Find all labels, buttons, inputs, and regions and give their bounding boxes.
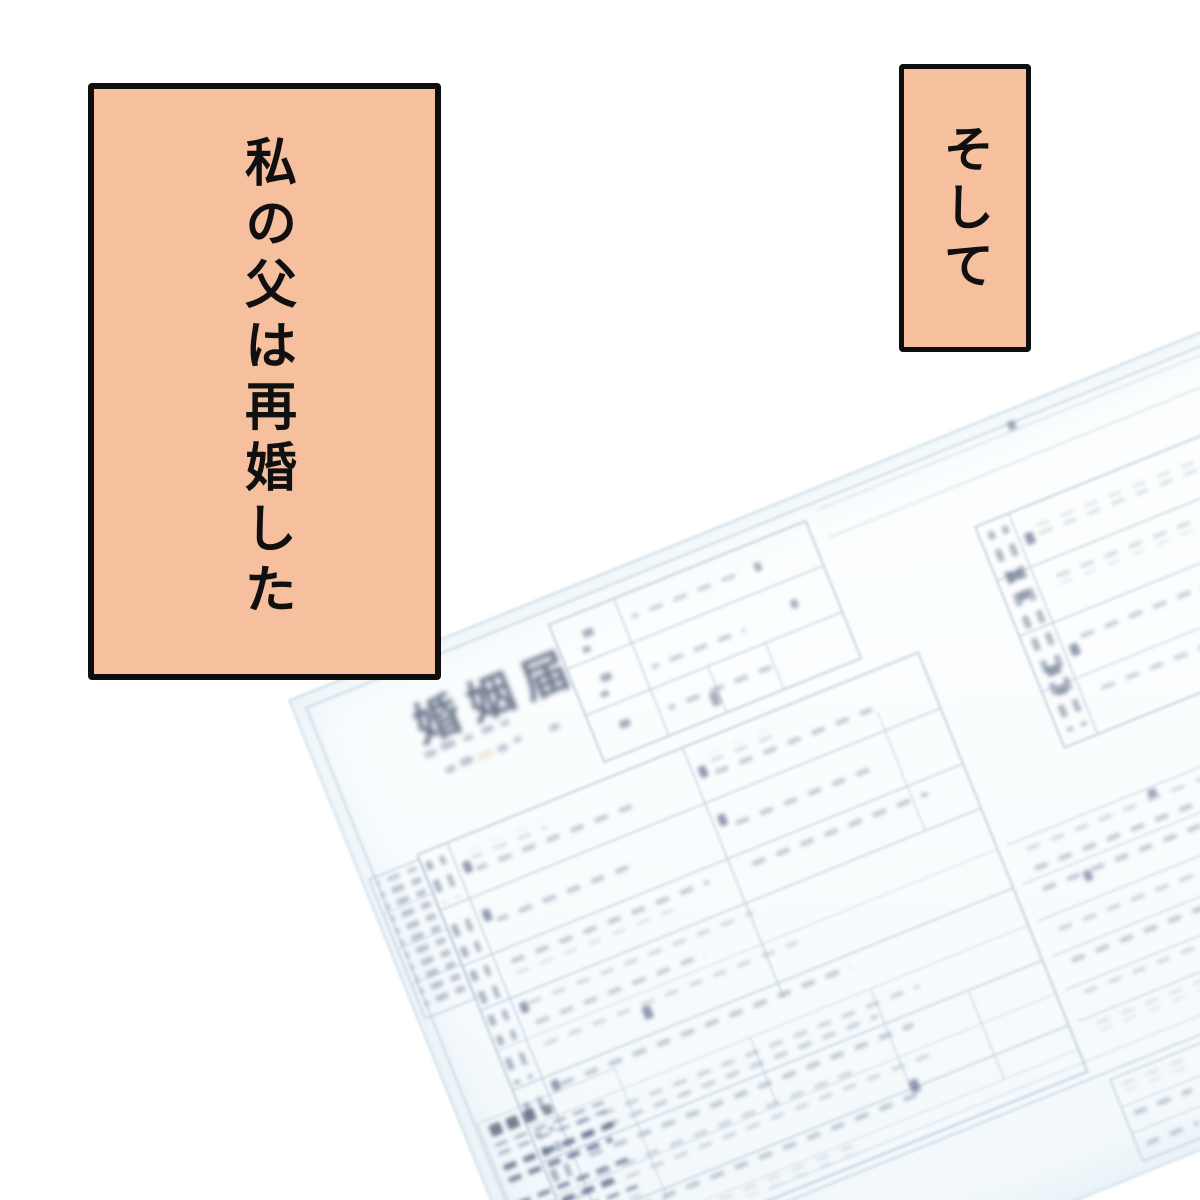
form-main-grid bbox=[417, 653, 1087, 1200]
narration-text-left: 私の父は再婚した bbox=[239, 135, 291, 623]
narration-text-top-right: そして bbox=[940, 123, 990, 297]
form-header-marks bbox=[1006, 340, 1200, 453]
form-contact-box bbox=[1110, 1041, 1200, 1161]
narration-box-left: 私の父は再婚した bbox=[88, 83, 441, 680]
narration-box-top-right: そして bbox=[899, 64, 1031, 352]
form-reception-box bbox=[549, 521, 861, 762]
form-declaration-rows bbox=[1007, 692, 1200, 1068]
comic-panel: 婚姻届 bbox=[0, 0, 1200, 1200]
